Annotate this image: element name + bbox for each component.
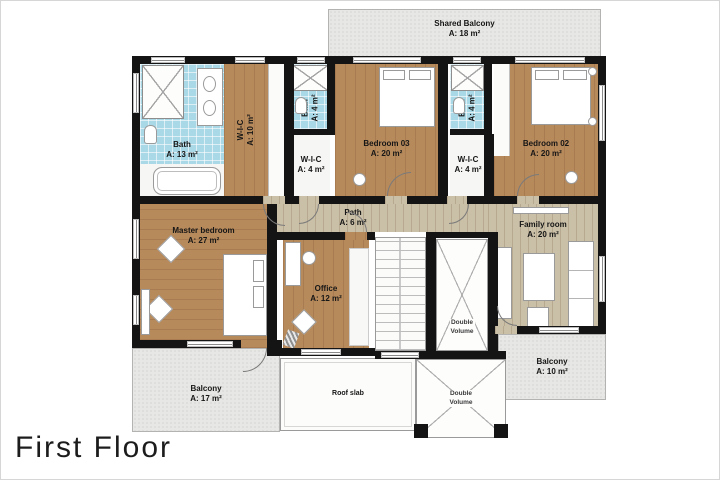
- pillow-icon: [563, 70, 587, 80]
- coffee-table-icon: [523, 253, 555, 301]
- room-area: A: 17 m²: [190, 394, 222, 404]
- double-volume-lower: DoubleVolume: [416, 359, 506, 438]
- room-area: A: 13 m²: [166, 150, 198, 160]
- dresser-icon: [141, 289, 150, 335]
- room-area: A: 20 m²: [519, 230, 567, 240]
- wall: [327, 56, 335, 134]
- room-label: Family room: [519, 220, 567, 230]
- wall: [484, 134, 494, 204]
- window: [133, 295, 139, 325]
- lamp-icon: [588, 117, 597, 126]
- window: [235, 57, 265, 63]
- door-opening: [517, 196, 539, 204]
- column: [414, 424, 428, 438]
- window: [297, 57, 325, 63]
- window: [301, 349, 341, 355]
- room-area: A: 10 m²: [246, 114, 256, 146]
- room-label: Office: [310, 284, 342, 294]
- stairs: [375, 237, 426, 351]
- room-area: A: 27 m²: [172, 236, 234, 246]
- door-opening: [263, 196, 285, 204]
- window: [353, 57, 421, 63]
- room-label: Balcony: [190, 384, 222, 394]
- sink-icon: [203, 100, 216, 116]
- door-opening: [299, 196, 319, 204]
- room-label: Shared Balcony: [434, 19, 494, 29]
- tv-console-icon: [513, 207, 569, 214]
- door-opening: [241, 340, 267, 348]
- window: [187, 341, 233, 347]
- room-wic-4b: W-I-CA: 4 m²: [450, 134, 486, 196]
- window: [381, 352, 419, 358]
- pillow-icon: [383, 70, 405, 80]
- room-balcony-10: BalconyA: 10 m²: [498, 334, 606, 400]
- room-label: W-I-C: [454, 155, 481, 165]
- stool-icon: [353, 173, 366, 186]
- wall: [438, 56, 448, 204]
- page-title: First Floor: [15, 431, 172, 465]
- door-opening: [345, 232, 367, 240]
- window: [539, 327, 579, 333]
- dv-label-line2: Volume: [450, 399, 473, 406]
- wall: [426, 232, 498, 238]
- office-shelf: [349, 248, 369, 346]
- window: [133, 219, 139, 259]
- lamp-icon: [588, 67, 597, 76]
- window: [515, 57, 585, 63]
- wall: [488, 232, 498, 359]
- room-area: A: 4 m²: [454, 165, 481, 175]
- closet-shelf: [494, 64, 510, 156]
- room-area: A: 4 m²: [311, 94, 321, 121]
- bathtub-icon: [153, 167, 221, 195]
- wall: [484, 56, 492, 134]
- pillow-icon: [253, 260, 264, 282]
- room-label: Master bedroom: [172, 226, 234, 236]
- window: [599, 256, 605, 302]
- sofa-icon: [568, 241, 594, 329]
- room-roof-slab: Roof slab: [280, 358, 416, 431]
- room-label: Roof slab: [332, 390, 364, 399]
- room-wic-10: W-I-CA: 10 m²: [224, 64, 268, 196]
- room-area: A: 20 m²: [363, 149, 409, 159]
- stool-icon: [565, 171, 578, 184]
- room-area: A: 12 m²: [310, 294, 342, 304]
- room-label: Balcony: [536, 357, 568, 367]
- closet-shelf: [268, 64, 284, 196]
- floor-plan: Shared BalconyA: 18 m² BalconyA: 17 m² B…: [0, 0, 720, 480]
- room-label: Bath: [166, 140, 198, 150]
- dv-label-line2: Volume: [451, 328, 474, 335]
- pillow-icon: [409, 70, 431, 80]
- room-label: W-I-C: [236, 114, 246, 146]
- room-area: A: 4 m²: [468, 94, 478, 121]
- wall: [292, 129, 335, 135]
- wall: [267, 204, 277, 348]
- room-area: A: 20 m²: [523, 149, 569, 159]
- wall: [426, 232, 436, 359]
- dv-label-line1: Double: [451, 319, 473, 326]
- window: [151, 57, 185, 63]
- shower-icon: [142, 65, 184, 119]
- door-opening: [447, 196, 467, 204]
- room-label: Bedroom 03: [363, 139, 409, 149]
- dv-label-line1: Double: [450, 390, 472, 397]
- desk-icon: [285, 242, 301, 286]
- desk-chair-icon: [302, 251, 316, 265]
- pillow-icon: [253, 286, 264, 308]
- door-opening: [385, 196, 407, 204]
- toilet-icon: [295, 97, 307, 114]
- room-wic-4a: W-I-CA: 4 m²: [292, 134, 330, 196]
- room-area: A: 4 m²: [297, 165, 324, 175]
- toilet-icon: [453, 97, 465, 114]
- side-table-icon: [527, 307, 549, 327]
- sink-icon: [203, 76, 216, 92]
- window: [133, 73, 139, 113]
- room-area: A: 10 m²: [536, 367, 568, 377]
- window: [453, 57, 481, 63]
- window: [599, 85, 605, 141]
- toilet-icon: [144, 125, 157, 144]
- door-opening: [495, 326, 517, 334]
- shower-icon: [293, 65, 328, 91]
- shower-icon: [451, 65, 484, 91]
- room-label: W-I-C: [297, 155, 324, 165]
- column: [494, 424, 508, 438]
- room-area: A: 18 m²: [434, 29, 494, 39]
- room-shared-balcony: Shared BalconyA: 18 m²: [328, 9, 601, 59]
- double-volume-upper: DoubleVolume: [436, 239, 488, 351]
- pillow-icon: [535, 70, 559, 80]
- room-label: Bedroom 02: [523, 139, 569, 149]
